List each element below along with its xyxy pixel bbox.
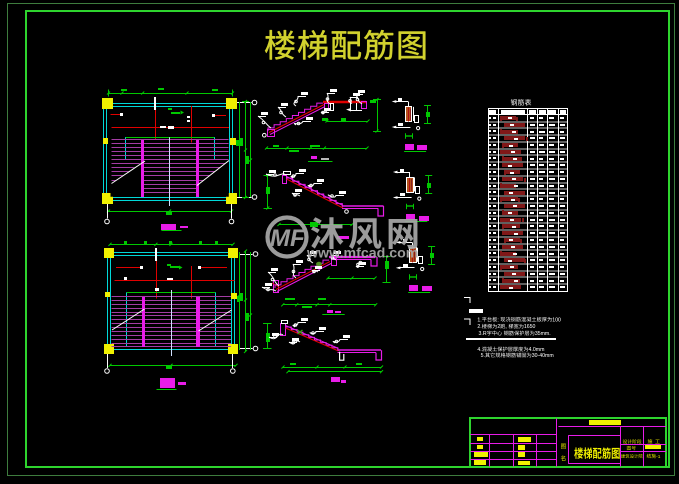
svg-text:1.: 1. — [477, 317, 481, 323]
svg-text:100: 100 — [552, 317, 561, 323]
svg-text:2.: 2. — [477, 324, 481, 330]
svg-text:,: , — [505, 324, 506, 330]
svg-text:www.mfcad.com: www.mfcad.com — [306, 246, 418, 262]
svg-text:2: 2 — [497, 324, 500, 330]
svg-text:3.R: 3.R — [479, 331, 487, 337]
svg-text:5.: 5. — [481, 353, 485, 359]
svg-text::: : — [497, 317, 498, 323]
svg-text:MF: MF — [270, 225, 306, 252]
svg-text:1650: 1650 — [524, 324, 536, 330]
svg-text:35mm.: 35mm. — [535, 331, 551, 337]
svg-text:-1: -1 — [656, 454, 661, 460]
svg-text:30-40mm: 30-40mm — [532, 353, 554, 359]
